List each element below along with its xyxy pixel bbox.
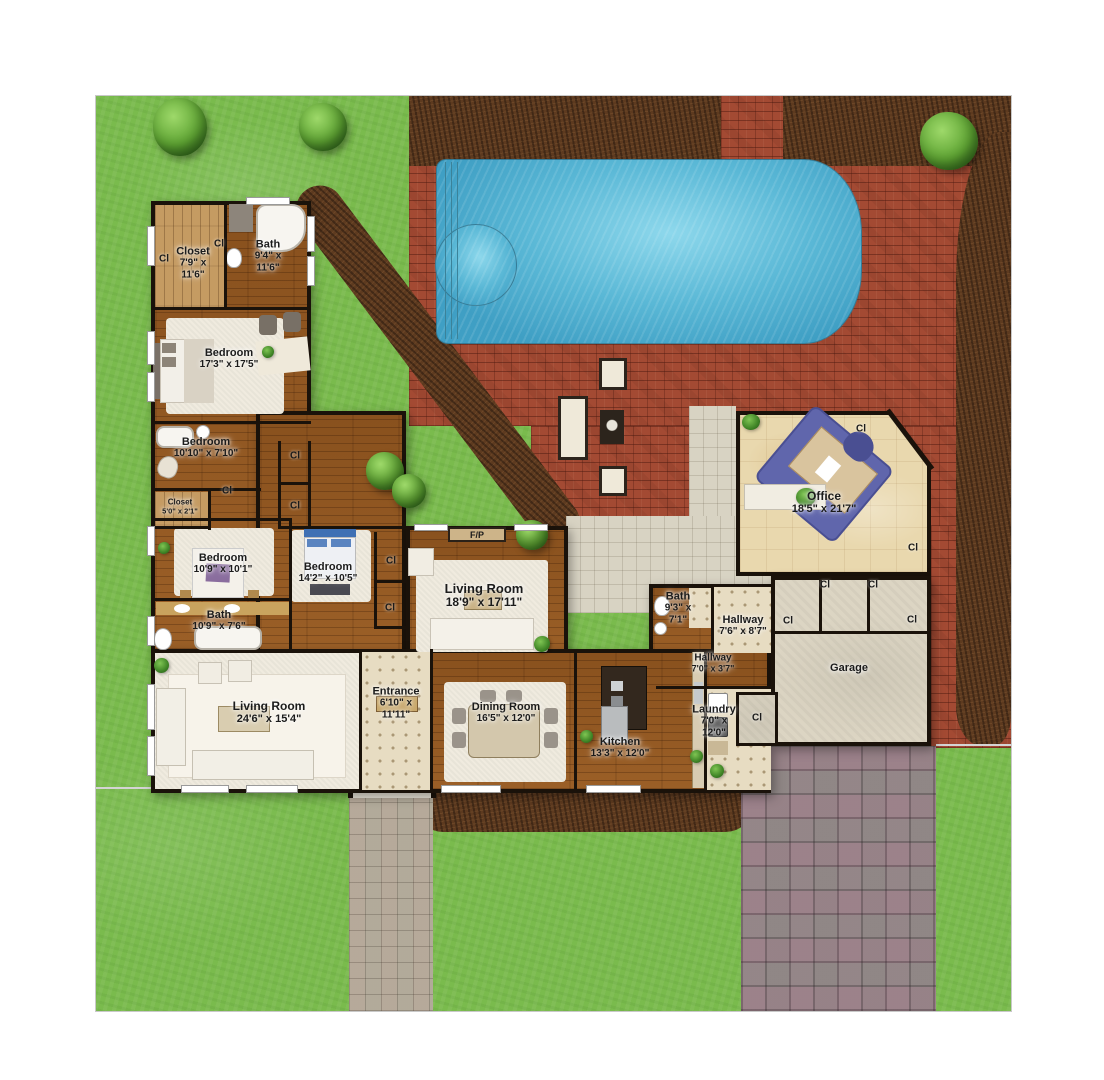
room-dims: 9'3" x 7'1" — [665, 603, 692, 626]
room-name: Bath — [192, 609, 245, 621]
paver-patio — [689, 406, 736, 518]
dining-chair — [452, 732, 466, 748]
room-dims: 10'10" x 7'10" — [174, 448, 238, 460]
wall — [656, 686, 771, 689]
closet-label: Cl — [908, 543, 918, 554]
room-dims: 13'3" x 12'0" — [591, 748, 650, 760]
toilet — [226, 248, 242, 268]
sofa — [156, 688, 186, 766]
toilet — [154, 628, 172, 650]
armchair — [283, 312, 301, 332]
window — [414, 524, 448, 531]
wall — [359, 649, 362, 793]
room-dims: 10'9" x 7'6" — [192, 621, 245, 633]
sofa — [192, 750, 314, 780]
tree — [920, 112, 978, 170]
wall — [430, 649, 433, 793]
room-label-bath-2: Bath 10'9" x 7'6" — [192, 609, 245, 633]
wall — [151, 421, 311, 424]
closet-label: Cl — [868, 580, 878, 591]
room-name: Closet — [176, 245, 210, 257]
sink — [174, 604, 190, 613]
room-name: Bedroom — [299, 561, 358, 573]
dining-chair — [480, 690, 496, 702]
bed-headboard — [304, 528, 356, 537]
closet-label: Cl — [290, 451, 300, 462]
closet-label: Cl — [214, 239, 224, 250]
room-dims: 9'4" x 11'6" — [255, 251, 282, 274]
closet-label: Cl — [783, 616, 793, 627]
room-name: Bath — [255, 238, 282, 250]
wall — [374, 580, 406, 583]
wall — [151, 307, 311, 310]
closet-label: Cl — [385, 603, 395, 614]
shower — [689, 588, 711, 628]
wall — [208, 488, 211, 530]
room-dims: 16'5" x 12'0" — [472, 713, 540, 725]
room-name: Hallway — [692, 652, 735, 663]
dining-chair — [506, 690, 522, 702]
window — [147, 616, 155, 646]
room-dims: 10'9" x 10'1" — [194, 564, 253, 576]
window — [246, 197, 290, 205]
window — [181, 785, 229, 793]
wall — [278, 441, 281, 529]
room-dims: 7'0" x 3'7" — [692, 663, 735, 673]
room-label-closet-master: Closet 7'9" x 11'6" — [176, 245, 210, 280]
wall — [574, 649, 577, 793]
room-label-entrance: Entrance 6'10" x 11'11" — [372, 685, 419, 720]
pillow — [162, 343, 176, 353]
dining-chair — [544, 732, 558, 748]
room-label-closet-2: Closet 5'0" x 2'1" — [162, 498, 198, 515]
room-label-bedroom-4: Bedroom 14'2" x 10'5" — [299, 561, 358, 585]
brick-patio — [721, 96, 783, 166]
wall — [711, 584, 714, 656]
outdoor-chair — [599, 466, 627, 496]
room-name: Living Room — [233, 700, 306, 713]
bush — [392, 474, 426, 508]
wall — [151, 598, 291, 601]
wall — [151, 488, 261, 491]
window — [586, 785, 641, 793]
window — [147, 684, 155, 730]
wall — [151, 526, 211, 529]
room-dims: 6'10" x 11'11" — [372, 698, 419, 721]
room-name: Dining Room — [472, 701, 540, 713]
room-name: Bedroom — [174, 436, 238, 448]
shower-mat — [229, 204, 253, 232]
wall — [278, 526, 406, 529]
armchair — [228, 660, 252, 682]
room-dims: 7'9" x 11'6" — [176, 258, 210, 281]
fireplace-label: F/P — [470, 530, 484, 540]
sink — [611, 681, 623, 691]
wall — [151, 518, 292, 521]
closet-label: Cl — [820, 580, 830, 591]
wall — [256, 421, 259, 528]
armchair — [259, 315, 277, 335]
pillow — [307, 539, 327, 547]
room-dims: 7'0" x 12'0" — [692, 716, 735, 739]
window — [514, 524, 548, 531]
tree — [299, 103, 347, 151]
room-name: Hallway — [719, 614, 767, 626]
wall — [771, 631, 931, 634]
room-label-kitchen: Kitchen 13'3" x 12'0" — [591, 736, 650, 760]
room-label-hallway-2: Hallway 7'0" x 3'7" — [692, 652, 735, 673]
window — [147, 736, 155, 776]
property-line — [936, 744, 1011, 746]
fire-pit — [600, 410, 624, 444]
pillow — [162, 357, 176, 367]
closet-label: Cl — [290, 501, 300, 512]
window — [307, 216, 315, 252]
room-label-bedroom-2: Bedroom 10'10" x 7'10" — [174, 436, 238, 460]
window — [441, 785, 501, 793]
closet-label: Cl — [856, 424, 866, 435]
window — [147, 226, 155, 266]
wall — [224, 201, 227, 309]
bed-bench — [310, 584, 350, 595]
entrance-floor — [362, 652, 430, 790]
room-dims: 17'3" x 17'5" — [200, 359, 259, 371]
room-dims: 18'9" x 17'11" — [445, 596, 524, 610]
wall — [289, 518, 292, 653]
site-plan: Closet 7'9" x 11'6" Bath 9'4" x 11'6" Be… — [95, 95, 1012, 1012]
room-label-living-room-main: Living Room 18'9" x 17'11" — [445, 582, 524, 610]
laundry-shelf — [708, 741, 728, 755]
room-dims: 7'6" x 8'7" — [719, 626, 767, 638]
window — [147, 526, 155, 556]
room-label-laundry: Laundry 7'0" x 12'0" — [692, 703, 735, 738]
room-label-hallway-1: Hallway 7'6" x 8'7" — [719, 614, 767, 638]
window — [147, 331, 155, 365]
wall — [308, 441, 311, 529]
armchair — [408, 548, 434, 576]
armchair — [198, 662, 222, 684]
room-label-garage: Garage — [830, 662, 868, 674]
closet-label: Cl — [159, 254, 169, 265]
room-name: Laundry — [692, 703, 735, 715]
mulch-bed — [956, 132, 1011, 746]
window — [147, 372, 155, 402]
closet-label: Cl — [907, 615, 917, 626]
window — [307, 256, 315, 286]
walkway — [349, 791, 433, 1011]
dining-chair — [452, 708, 466, 724]
floor-plan-page: Closet 7'9" x 11'6" Bath 9'4" x 11'6" Be… — [0, 0, 1104, 1080]
room-label-office: Office 18'5" x 21'7" — [792, 490, 857, 516]
room-label-bath-master: Bath 9'4" x 11'6" — [255, 238, 282, 273]
room-dims: 14'2" x 10'5" — [299, 573, 358, 585]
pool-lap-lines — [445, 162, 461, 339]
room-name: Bath — [665, 590, 692, 602]
pillow — [331, 539, 351, 547]
room-name: Bedroom — [194, 552, 253, 564]
dining-chair — [544, 708, 558, 724]
tree — [153, 98, 207, 156]
room-name: Kitchen — [591, 736, 650, 748]
outdoor-sofa — [558, 396, 588, 460]
room-dims: 18'5" x 21'7" — [792, 503, 857, 516]
room-name: Office — [792, 490, 857, 503]
room-label-bedroom-master: Bedroom 17'3" x 17'5" — [200, 347, 259, 371]
closet-label: Cl — [386, 556, 396, 567]
outdoor-chair — [599, 358, 627, 390]
room-dims: 5'0" x 2'1" — [162, 507, 198, 516]
room-name: Entrance — [372, 685, 419, 697]
sofa — [430, 618, 534, 650]
room-label-bath-3: Bath 9'3" x 7'1" — [665, 590, 692, 625]
room-name: Garage — [830, 662, 868, 674]
room-dims: 24'6" x 15'4" — [233, 713, 306, 726]
room-label-living-room-2: Living Room 24'6" x 15'4" — [233, 700, 306, 726]
wall — [374, 626, 406, 629]
room-name: Bedroom — [200, 347, 259, 359]
window — [246, 785, 298, 793]
wall — [278, 482, 311, 485]
room-label-dining-room: Dining Room 16'5" x 12'0" — [472, 701, 540, 725]
room-label-bedroom-3: Bedroom 10'9" x 10'1" — [194, 552, 253, 576]
closet-label: Cl — [222, 486, 232, 497]
closet-label: Cl — [752, 713, 762, 724]
